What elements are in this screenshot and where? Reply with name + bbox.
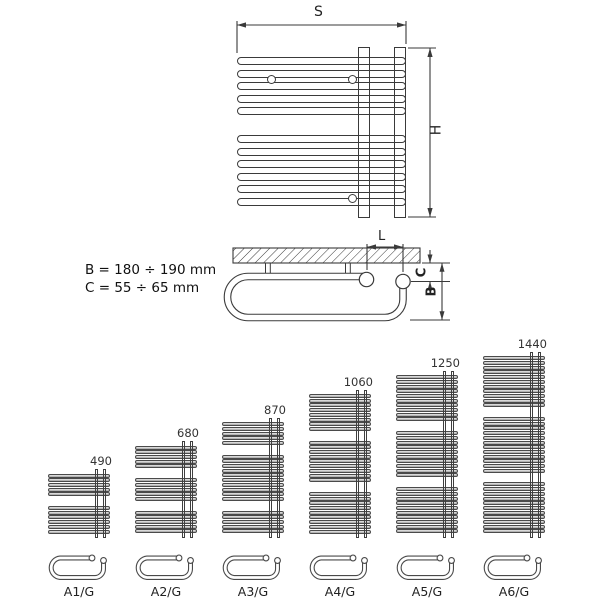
variant-tube bbox=[309, 403, 371, 407]
variant-collector bbox=[182, 441, 186, 538]
variant-side-loop-icon bbox=[481, 551, 547, 583]
variant-tube bbox=[483, 417, 545, 421]
variant-tube bbox=[483, 482, 545, 486]
variant-tube bbox=[309, 427, 371, 431]
variant-tube bbox=[309, 394, 371, 398]
variant-tube bbox=[396, 473, 458, 477]
variant-tube bbox=[396, 431, 458, 435]
variant-collector bbox=[103, 469, 107, 538]
variant-tube bbox=[396, 469, 458, 473]
variant-tube bbox=[396, 445, 458, 449]
variant-tube bbox=[483, 511, 545, 515]
variant-tube bbox=[309, 474, 371, 478]
variant-tube bbox=[135, 483, 197, 487]
variant-model-label: A2/G bbox=[130, 584, 202, 599]
variant-tube bbox=[309, 469, 371, 473]
collector-section-right bbox=[396, 274, 410, 288]
variant-collector bbox=[443, 371, 447, 538]
note-c-range: C = 55 ÷ 65 mm bbox=[85, 279, 216, 297]
variant-tube bbox=[135, 515, 197, 519]
variant-collector bbox=[269, 418, 273, 538]
variant-A1-G bbox=[48, 469, 110, 538]
front-view-tube bbox=[237, 70, 406, 78]
collector-left bbox=[358, 47, 370, 218]
variant-A5-G bbox=[396, 371, 458, 538]
variant-tube bbox=[309, 459, 371, 463]
variant-tube bbox=[222, 478, 284, 482]
variant-tube bbox=[135, 446, 197, 450]
variant-tube bbox=[222, 455, 284, 459]
variant-tube bbox=[396, 464, 458, 468]
variant-tube bbox=[222, 497, 284, 501]
variant-side-loop-icon bbox=[133, 551, 199, 583]
variant-tube bbox=[135, 478, 197, 482]
variant-tube bbox=[396, 511, 458, 515]
variant-height-value: 680 bbox=[135, 426, 199, 440]
variant-tube bbox=[222, 464, 284, 468]
variant-tube bbox=[48, 515, 110, 519]
variant-side-loop-icon bbox=[46, 551, 112, 583]
variant-tube bbox=[483, 445, 545, 449]
variant-model-label: A3/G bbox=[217, 584, 289, 599]
variant-tube bbox=[309, 464, 371, 468]
variant-tube bbox=[483, 426, 545, 430]
variant-tube bbox=[396, 459, 458, 463]
variant-tube bbox=[309, 506, 371, 510]
variant-collector bbox=[190, 441, 194, 538]
variant-tube bbox=[396, 403, 458, 407]
variant-tube bbox=[483, 459, 545, 463]
wall-section bbox=[233, 248, 420, 263]
front-view-tube bbox=[237, 107, 406, 115]
s-dimension bbox=[237, 21, 406, 53]
variant-tube bbox=[309, 501, 371, 505]
variant-tube bbox=[483, 487, 545, 491]
variant-tube bbox=[309, 511, 371, 515]
variant-tube bbox=[483, 380, 545, 384]
variant-tube bbox=[483, 469, 545, 473]
variant-tube bbox=[222, 473, 284, 477]
h-dimension-label: H bbox=[428, 125, 444, 136]
variant-tube bbox=[48, 492, 110, 496]
variant-tube bbox=[309, 530, 371, 534]
front-view-tube bbox=[237, 198, 406, 206]
note-b-range: B = 180 ÷ 190 mm bbox=[85, 261, 216, 279]
variant-tube bbox=[396, 436, 458, 440]
variant-tube bbox=[396, 501, 458, 505]
variant-model-label: A5/G bbox=[391, 584, 463, 599]
variant-tube bbox=[396, 413, 458, 417]
variant-tube bbox=[222, 469, 284, 473]
variant-tube bbox=[309, 422, 371, 426]
variant-height-value: 870 bbox=[222, 403, 286, 417]
variant-model-label: A6/G bbox=[478, 584, 550, 599]
variant-tube bbox=[483, 506, 545, 510]
variant-tube bbox=[309, 450, 371, 454]
variant-collector bbox=[356, 390, 360, 539]
variant-tube bbox=[135, 529, 197, 533]
variant-tube bbox=[483, 515, 545, 519]
variant-tube bbox=[309, 525, 371, 529]
variant-tube bbox=[483, 441, 545, 445]
variant-tube bbox=[309, 515, 371, 519]
variant-tube bbox=[135, 455, 197, 459]
variant-tube bbox=[222, 427, 284, 431]
variant-tube bbox=[483, 436, 545, 440]
variant-tube bbox=[135, 520, 197, 524]
variant-collector bbox=[538, 352, 542, 538]
variant-tube bbox=[309, 492, 371, 496]
collector-right bbox=[394, 47, 406, 218]
variant-tube bbox=[222, 520, 284, 524]
variant-tube bbox=[483, 356, 545, 360]
variant-tube bbox=[309, 478, 371, 482]
front-view-tube bbox=[237, 173, 406, 181]
variant-A3-G bbox=[222, 418, 284, 538]
variant-tube bbox=[48, 478, 110, 482]
front-view-tube bbox=[237, 82, 406, 90]
variant-tube bbox=[396, 506, 458, 510]
dimension-notes: B = 180 ÷ 190 mm C = 55 ÷ 65 mm bbox=[85, 261, 216, 297]
variant-tube bbox=[396, 375, 458, 379]
b-dimension-label: B bbox=[424, 287, 439, 297]
variant-tube bbox=[483, 529, 545, 533]
variant-tube bbox=[483, 399, 545, 403]
variant-tube bbox=[135, 497, 197, 501]
variant-tube bbox=[396, 385, 458, 389]
variant-tube bbox=[48, 474, 110, 478]
variant-tube bbox=[483, 492, 545, 496]
variant-tube bbox=[135, 511, 197, 515]
variant-tube bbox=[222, 515, 284, 519]
tube-loop bbox=[228, 272, 411, 317]
variant-tube bbox=[396, 455, 458, 459]
front-view-tube bbox=[237, 160, 406, 168]
variant-tube bbox=[48, 525, 110, 529]
variant-tube bbox=[222, 492, 284, 496]
variant-tube bbox=[309, 497, 371, 501]
variant-tube bbox=[483, 361, 545, 365]
variant-tube bbox=[222, 511, 284, 515]
variant-tube bbox=[135, 450, 197, 454]
vent-plug-icon bbox=[348, 194, 357, 203]
variant-tube bbox=[483, 525, 545, 529]
variant-tube bbox=[483, 501, 545, 505]
variant-tube bbox=[48, 506, 110, 510]
front-view-tube bbox=[237, 185, 406, 193]
variant-tube bbox=[222, 459, 284, 463]
collector-section-left bbox=[359, 272, 373, 286]
variant-height-value: 1250 bbox=[396, 356, 460, 370]
variant-tube bbox=[483, 464, 545, 468]
variant-tube bbox=[483, 366, 545, 370]
variant-tube bbox=[309, 445, 371, 449]
variant-tube bbox=[483, 370, 545, 374]
variant-height-value: 1060 bbox=[309, 375, 373, 389]
variant-A2-G bbox=[135, 441, 197, 538]
variant-collector bbox=[530, 352, 534, 538]
l-dimension-label: L bbox=[378, 229, 385, 244]
vent-plug-icon bbox=[267, 75, 276, 84]
variant-tube bbox=[396, 394, 458, 398]
variant-tube bbox=[483, 422, 545, 426]
variant-model-label: A4/G bbox=[304, 584, 376, 599]
variant-tube bbox=[396, 399, 458, 403]
variant-collector bbox=[364, 390, 368, 539]
variant-tube bbox=[396, 408, 458, 412]
variant-collector bbox=[277, 418, 281, 538]
variant-tube bbox=[483, 385, 545, 389]
variant-tube bbox=[222, 529, 284, 533]
variant-tube bbox=[483, 394, 545, 398]
variant-tube bbox=[135, 464, 197, 468]
variant-tube bbox=[483, 431, 545, 435]
variant-tube bbox=[396, 515, 458, 519]
variant-tube bbox=[48, 530, 110, 534]
variant-side-loop-icon bbox=[307, 551, 373, 583]
variant-tube bbox=[483, 497, 545, 501]
variant-tube bbox=[396, 520, 458, 524]
variant-tube bbox=[396, 525, 458, 529]
variant-collector bbox=[451, 371, 455, 538]
variant-tube bbox=[483, 403, 545, 407]
variant-A6-G bbox=[483, 352, 545, 538]
variant-side-loop-icon bbox=[394, 551, 460, 583]
variant-tube bbox=[48, 520, 110, 524]
variant-tube bbox=[396, 529, 458, 533]
variant-tube bbox=[48, 483, 110, 487]
variant-tube bbox=[396, 492, 458, 496]
variant-tube bbox=[309, 455, 371, 459]
variant-tube bbox=[396, 497, 458, 501]
variant-tube bbox=[135, 460, 197, 464]
front-view-tube bbox=[237, 148, 406, 156]
variant-tube bbox=[135, 492, 197, 496]
c-dimension-label: C bbox=[414, 268, 429, 278]
vent-plug-icon bbox=[348, 75, 357, 84]
variant-tube bbox=[222, 488, 284, 492]
variant-tube bbox=[483, 389, 545, 393]
variant-tube bbox=[396, 487, 458, 491]
variant-tube bbox=[309, 408, 371, 412]
front-view-tube bbox=[237, 95, 406, 103]
variant-height-value: 1440 bbox=[483, 337, 547, 351]
variant-tube bbox=[483, 450, 545, 454]
variant-model-label: A1/G bbox=[43, 584, 115, 599]
variant-height-value: 490 bbox=[48, 454, 112, 468]
variant-side-loop-icon bbox=[220, 551, 286, 583]
variant-tube bbox=[309, 520, 371, 524]
variant-tube bbox=[396, 450, 458, 454]
variant-tube bbox=[309, 418, 371, 422]
variant-tube bbox=[222, 432, 284, 436]
variant-A4-G bbox=[309, 390, 371, 539]
variant-tube bbox=[396, 417, 458, 421]
variant-tube bbox=[396, 380, 458, 384]
variant-tube bbox=[396, 441, 458, 445]
variant-tube bbox=[396, 389, 458, 393]
variant-tube bbox=[309, 441, 371, 445]
variant-tube bbox=[222, 525, 284, 529]
variant-tube bbox=[135, 525, 197, 529]
variant-tube bbox=[483, 375, 545, 379]
variant-tube bbox=[309, 399, 371, 403]
variant-tube bbox=[222, 422, 284, 426]
variant-tube bbox=[222, 441, 284, 445]
front-view-tube bbox=[237, 135, 406, 143]
variant-tube bbox=[483, 455, 545, 459]
variant-tube bbox=[222, 436, 284, 440]
radiator-technical-diagram: S H L C B B = 180 ÷ 190 mm C = 55 ÷ 65 m… bbox=[0, 0, 600, 600]
variant-tube bbox=[48, 488, 110, 492]
variant-tube bbox=[48, 511, 110, 515]
variant-tube bbox=[309, 413, 371, 417]
s-dimension-label: S bbox=[314, 4, 323, 20]
side-view bbox=[228, 244, 451, 320]
variant-tube bbox=[135, 488, 197, 492]
variant-collector bbox=[95, 469, 99, 538]
front-view-tube bbox=[237, 57, 406, 65]
variant-tube bbox=[222, 483, 284, 487]
variant-tube bbox=[483, 520, 545, 524]
